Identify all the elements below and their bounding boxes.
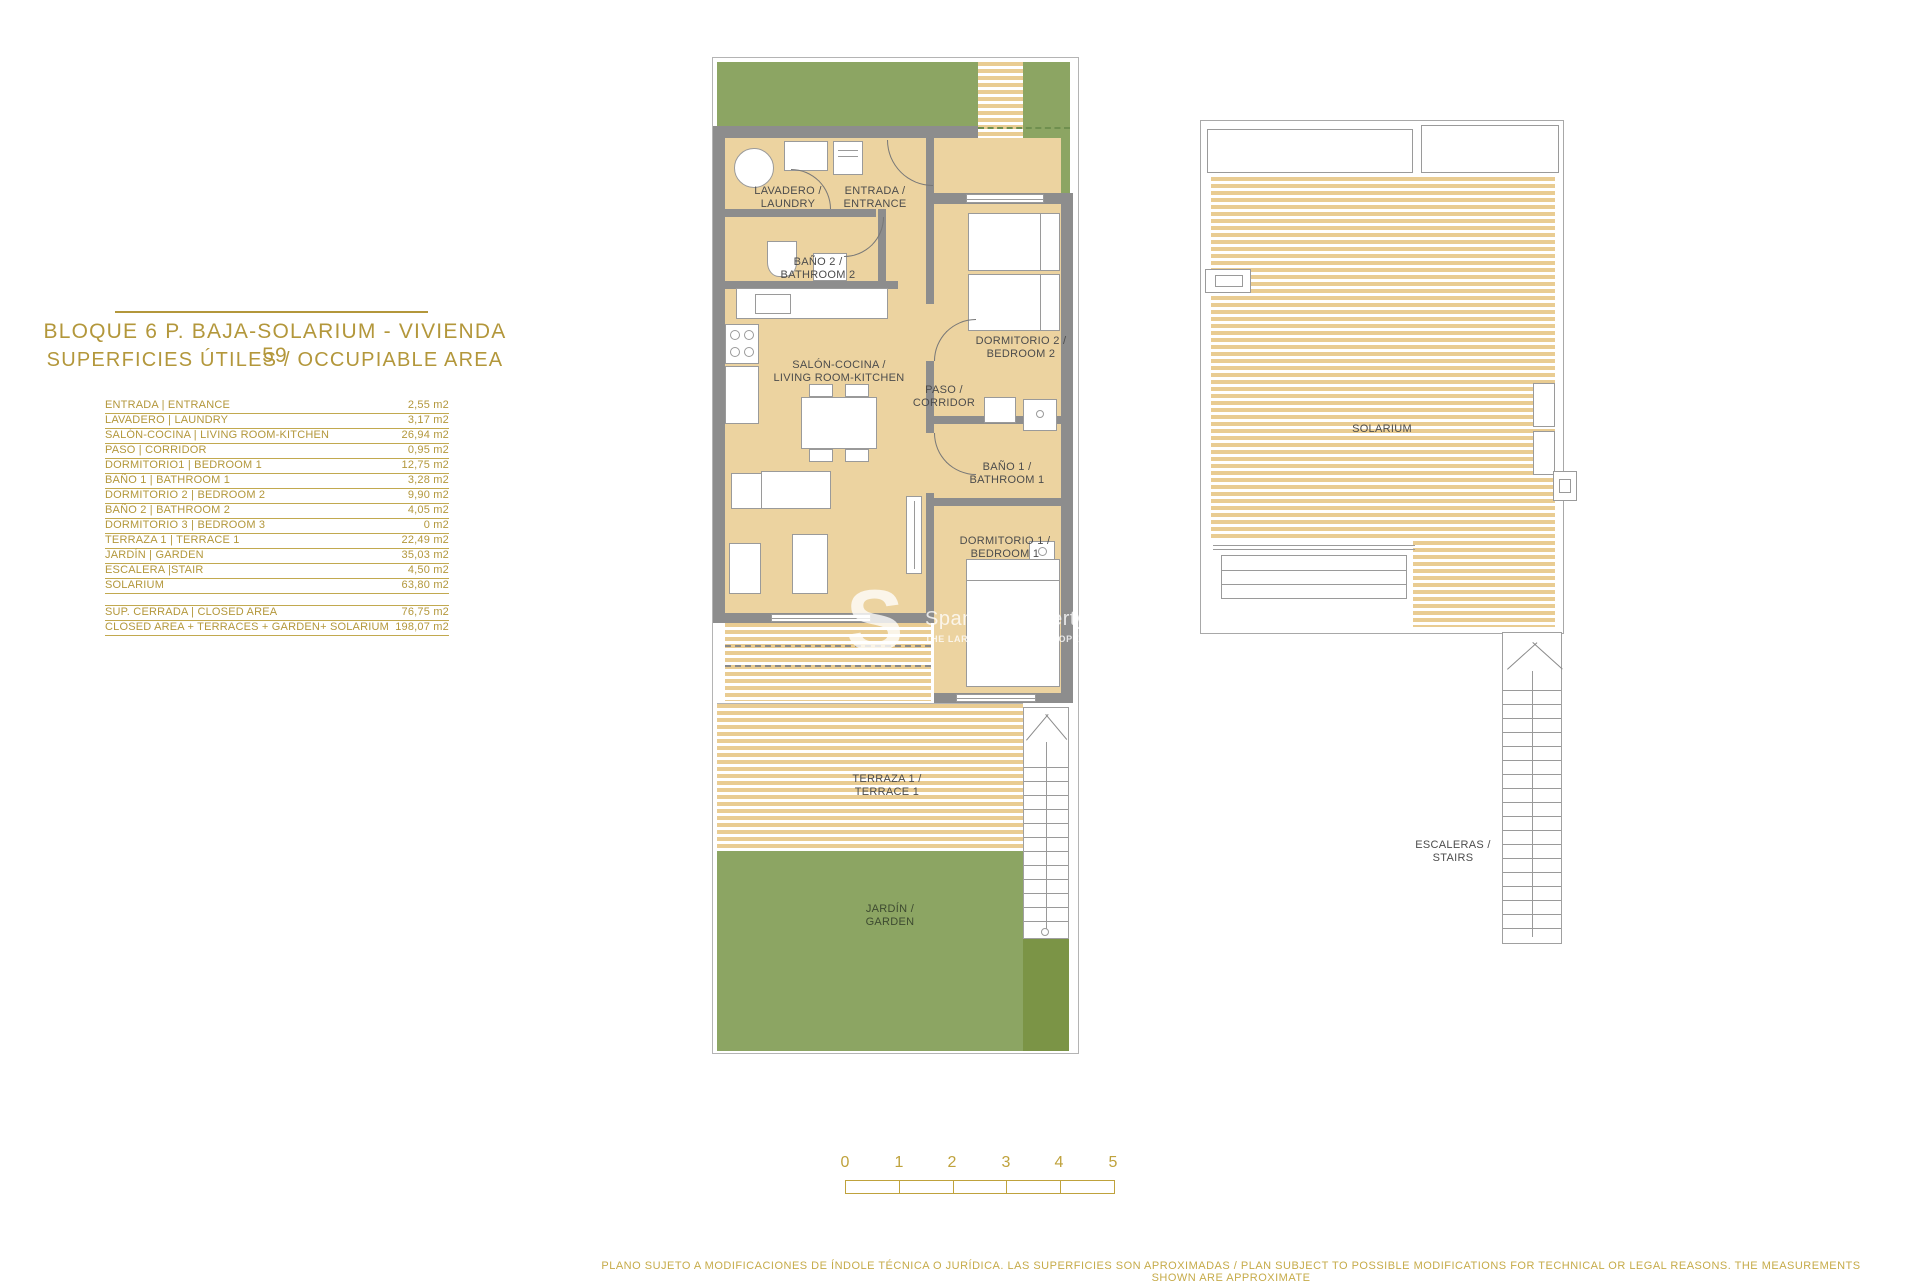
watermark-tagline: THE LARGEST SPANISH PROPERTY LISTING [925,634,1142,644]
scale-tick: 4 [1055,1154,1064,1172]
row-label: ENTRADA | ENTRANCE [105,399,230,413]
row-label: TERRAZA 1 | TERRACE 1 [105,534,240,548]
plot-dashed-line [978,127,1070,129]
solarium-floor-plan: SOLARIUM [1200,120,1564,634]
row-value: 4,05 m2 [408,504,449,518]
room-label-entrance: ENTRADA / ENTRANCE [825,185,925,211]
exterior-stairs [1023,707,1069,939]
table-row: PASO | CORRIDOR0,95 m2 [105,444,449,459]
row-value: 26,94 m2 [402,429,449,443]
row-label: SALÓN-COCINA | LIVING ROOM-KITCHEN [105,429,329,443]
row-label: DORMITORIO 3 | BEDROOM 3 [105,519,265,533]
table-row: BAÑO 2 | BATHROOM 24,05 m2 [105,504,449,519]
main-floor-plan: LAVADERO / LAUNDRY ENTRADA / ENTRANCE BA… [712,57,1079,1054]
sideboard [906,496,922,574]
bed [968,274,1060,331]
floor-plan-page: { "title_block": { "line1": "BLOQUE 6 P.… [0,0,1920,1280]
table-row: SALÓN-COCINA | LIVING ROOM-KITCHEN26,94 … [105,429,449,444]
room-label-living: SALÓN-COCINA / LIVING ROOM-KITCHEN [759,359,919,385]
row-label: DORMITORIO 2 | BEDROOM 2 [105,489,265,503]
table-row: DORMITORIO 2 | BEDROOM 29,90 m2 [105,489,449,504]
table-row: DORMITORIO 3 | BEDROOM 30 m2 [105,519,449,534]
wall-segment [926,493,934,613]
stove [725,324,759,364]
dining-table [801,397,877,449]
armchair [729,543,761,594]
scale-tick: 2 [948,1154,957,1172]
row-value: 12,75 m2 [402,459,449,473]
room-label-terrace: TERRAZA 1 / TERRACE 1 [807,773,967,799]
row-value: 9,90 m2 [408,489,449,503]
watermark-logo: S [846,578,903,664]
roof-box [1421,125,1559,173]
row-label: LAVADERO | LAUNDRY [105,414,228,428]
wall-segment [713,126,978,138]
boiler [734,148,774,188]
room-label-laundry: LAVADERO / LAUNDRY [738,185,838,211]
row-label: DORMITORIO1 | BEDROOM 1 [105,459,262,473]
planter-rail [1213,545,1415,550]
row-label: SOLARIUM [105,579,164,593]
room-label-bedroom1: DORMITORIO 1 / BEDROOM 1 [935,535,1075,561]
window [966,194,1044,203]
room-label-bedroom2: DORMITORIO 2 / BEDROOM 2 [951,335,1091,361]
chair [845,449,869,462]
solarium-deck [1211,177,1555,541]
row-label: ESCALERA |STAIR [105,564,204,578]
row-value: 76,75 m2 [402,606,449,620]
table-row: LAVADERO | LAUNDRY3,17 m2 [105,414,449,429]
row-label: CLOSED AREA + TERRACES + GARDEN+ SOLARIU… [105,621,389,635]
scale-segment [900,1181,954,1193]
roof-box [1207,129,1413,173]
solarium-deck-extension [1413,541,1555,627]
table-row: ESCALERA |STAIR4,50 m2 [105,564,449,579]
chair [809,384,833,397]
chair [845,384,869,397]
row-label: BAÑO 1 | BATHROOM 1 [105,474,230,488]
disclaimer-text: PLANO SUJETO A MODIFICACIONES DE ÍNDOLE … [600,1260,1862,1284]
room-label-solarium: SOLARIUM [1201,423,1563,436]
shower [1023,399,1057,431]
scale-segment [954,1181,1008,1193]
room-label-bathroom1: BAÑO 1 / BATHROOM 1 [947,461,1067,487]
row-label: SUP. CERRADA | CLOSED AREA [105,606,277,620]
table-summary-row: CLOSED AREA + TERRACES + GARDEN+ SOLARIU… [105,621,449,636]
scale-segment [846,1181,900,1193]
kitchen-counter [736,288,888,319]
room-label-stairs: ESCALERAS / STAIRS [1388,839,1518,865]
wall-segment [934,498,1073,506]
scale-segment [1061,1181,1114,1193]
planter [1221,555,1407,599]
watermark-brand: Spanish Property [925,608,1086,631]
scale-ruler [845,1180,1115,1194]
row-value: 0,95 m2 [408,444,449,458]
table-row: TERRAZA 1 | TERRACE 122,49 m2 [105,534,449,549]
row-value: 22,49 m2 [402,534,449,548]
garden-area [717,851,1069,1051]
wall-segment [713,138,725,623]
scale-segment [1007,1181,1061,1193]
row-value: 2,55 m2 [408,399,449,413]
row-value: 3,28 m2 [408,474,449,488]
row-value: 198,07 m2 [395,621,449,635]
scale-tick: 5 [1109,1154,1118,1172]
sofa [761,471,831,509]
row-value: 35,03 m2 [402,549,449,563]
table-summary-row: SUP. CERRADA | CLOSED AREA76,75 m2 [105,606,449,621]
counter [725,366,759,424]
plan-subtitle: SUPERFICIES ÚTILES / OCCUPIABLE AREA [40,349,510,372]
table-row: SOLARIUM63,80 m2 [105,579,449,594]
row-label: BAÑO 2 | BATHROOM 2 [105,504,230,518]
room-label-bathroom2: BAÑO 2 / BATHROOM 2 [758,256,878,282]
scale-tick: 0 [841,1154,850,1172]
table-divider [105,594,449,606]
title-rule [115,311,428,313]
bed [968,213,1060,271]
row-label: PASO | CORRIDOR [105,444,207,458]
table-row: JARDÍN | GARDEN35,03 m2 [105,549,449,564]
row-value: 63,80 m2 [402,579,449,593]
room-label-garden: JARDÍN / GARDEN [810,903,970,929]
table-row: DORMITORIO1 | BEDROOM 112,75 m2 [105,459,449,474]
scale-tick: 1 [895,1154,904,1172]
bench [1533,383,1555,427]
area-table: ENTRADA | ENTRANCE2,55 m2 LAVADERO | LAU… [105,399,449,636]
row-value: 4,50 m2 [408,564,449,578]
chair [809,449,833,462]
window [956,694,1036,702]
dryer [833,141,863,175]
bench [1533,431,1555,475]
ac-unit [1205,269,1251,293]
garden-dark-patch [1023,939,1069,1051]
sofa [792,534,828,594]
row-value: 0 m2 [424,519,449,533]
washing-machine [784,141,828,171]
table-row: BAÑO 1 | BATHROOM 13,28 m2 [105,474,449,489]
side-table [731,473,763,509]
room-label-corridor: PASO / CORRIDOR [894,384,994,410]
row-label: JARDÍN | GARDEN [105,549,204,563]
scale-tick: 3 [1002,1154,1011,1172]
solarium-stairs [1502,632,1562,944]
row-value: 3,17 m2 [408,414,449,428]
table-row: ENTRADA | ENTRANCE2,55 m2 [105,399,449,414]
access-hatch [1553,471,1577,501]
